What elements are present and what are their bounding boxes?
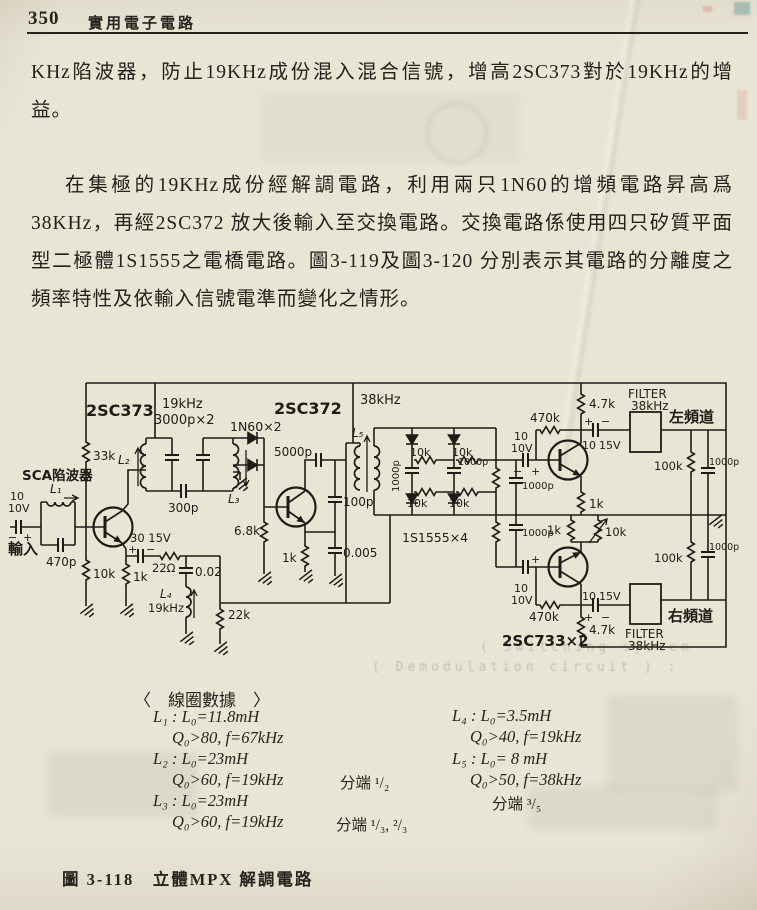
- book-title: 實用電子電路: [88, 12, 196, 33]
- label-1k-top-emitter: 1k: [589, 497, 604, 511]
- label-1000p-bridge-2: 1000p: [458, 457, 488, 468]
- label-1s1555: 1S1555×4: [402, 530, 468, 545]
- label-1000p-matrix-1: 1000p: [522, 481, 554, 492]
- label-top-cap-15v: 15V: [599, 439, 621, 452]
- label-t4-cap-plus: +: [531, 553, 540, 566]
- label-100k-bottom: 100k: [654, 551, 683, 565]
- resistor-22k: [217, 607, 224, 631]
- label-t3-cap-10v: 10V: [511, 442, 533, 455]
- label-filter-bottom-freq: 38kHz: [628, 639, 666, 653]
- ground: [80, 604, 98, 620]
- resistor-matrix-2: [493, 520, 500, 544]
- coil-L5-q: Q₀>50, f=38kHz: [470, 770, 581, 790]
- coil-L2-tap: 分端 ¹/₂: [340, 771, 389, 793]
- capacitor-10uf-top-base: [523, 453, 528, 467]
- label-38khz: 38kHz: [360, 393, 401, 408]
- label-100p: 100p: [343, 495, 374, 509]
- coil-L4: [186, 587, 191, 617]
- capacitor-3000p-1: [165, 455, 179, 460]
- label-1k-t2: 1k: [282, 551, 297, 565]
- label-1n60: 1N60×2: [230, 419, 282, 434]
- label-1k-bottom-emitter: 1k: [547, 523, 561, 537]
- label-19khz-L4: 19kHz: [148, 601, 184, 615]
- label-top-cap-minus: −: [601, 415, 610, 428]
- label-470k-bottom: 470k: [529, 610, 559, 624]
- resistor-matrix-1: [493, 466, 500, 490]
- label-1k-t1: 1k: [133, 570, 148, 584]
- label-top-cap-plus: +: [584, 415, 593, 428]
- label-2sc373: 2SC373: [86, 401, 154, 420]
- arrow-L4: [191, 590, 197, 618]
- label-2sc372: 2SC372: [274, 399, 342, 418]
- arrow-L5: [364, 436, 370, 492]
- label-4k7-bottom: 4.7k: [589, 623, 615, 637]
- header-rule: [27, 32, 748, 34]
- capacitor-300p: [181, 484, 186, 498]
- coils: [47, 444, 380, 617]
- resistor-470k-top: [538, 427, 562, 434]
- ground: [299, 570, 317, 586]
- capacitor-470p: [58, 538, 63, 552]
- coil-L5-primary: [355, 446, 361, 490]
- capacitor-1000p-matrix-1: [509, 478, 523, 483]
- coil-L3-tap: 分端 ¹/₃, ²/₃: [336, 813, 407, 835]
- label-5000p: 5000p: [274, 445, 312, 459]
- label-filter-top-freq: 38kHz: [631, 399, 669, 413]
- label-100k-top: 100k: [654, 459, 683, 473]
- label-0005: 0.005: [343, 546, 377, 560]
- label-470k-top: 470k: [530, 411, 560, 425]
- page-number: 350: [28, 8, 60, 30]
- label-002: 0.02: [195, 565, 222, 579]
- figure-caption: 圖 3-118 立體MPX 解調電路: [62, 866, 313, 890]
- label-L4: L₄: [160, 587, 172, 601]
- label-1000p-bridge-1: 1000p: [391, 460, 402, 492]
- label-top-cap-10: 10: [582, 439, 596, 452]
- resistor-1k-top-emitter: [578, 490, 585, 514]
- circuit-diagram: 2SC373 19kHz 3000p×2 1N60×2 2SC372 38kHz…: [8, 372, 753, 674]
- label-right-channel: 右頻道: [668, 607, 713, 625]
- bleedthrough-blob: [606, 694, 738, 792]
- resistor-6k8: [261, 520, 268, 544]
- arrow-L1: [64, 495, 78, 501]
- capacitor-30uf-15v: [138, 549, 143, 563]
- bleedthrough-blob: [528, 786, 718, 830]
- label-t3-cap-plus: +: [531, 465, 540, 478]
- capacitor-3000p-2: [196, 455, 210, 460]
- coil-L3: [233, 444, 239, 488]
- filter-box-top: [630, 412, 661, 452]
- coil-L5-tap: 分端 ³/₅: [492, 792, 541, 814]
- label-10k-bridge-1: 10k: [410, 446, 431, 459]
- diode-1s1555-1: [406, 435, 418, 444]
- label-30uf-plus: +: [128, 543, 137, 556]
- label-1000p-out-bottom: 1000p: [709, 542, 739, 553]
- paragraph-1: KHz陷波器，防止19KHz成份混入混合信號，增高2SC373對於19KHz的增…: [31, 54, 733, 130]
- label-10k-bridge-4: 10k: [449, 497, 470, 510]
- label-10k-variable: 10k: [605, 525, 627, 539]
- ground: [258, 572, 276, 588]
- label-bot-cap-15v: 15V: [599, 590, 621, 603]
- resistor-100k-bottom: [688, 540, 695, 564]
- capacitor-1000p-out-top: [701, 468, 715, 473]
- diode-1s1555-2: [448, 435, 460, 444]
- coil-L1-q: Q₀>80, f=67kHz: [172, 728, 283, 748]
- label-bot-cap-plus: +: [584, 611, 593, 624]
- coil-L2: [141, 444, 147, 488]
- capacitor-1000p-matrix-2: [509, 525, 523, 530]
- resistor-22ohm: [158, 553, 182, 560]
- label-L3: L₃: [228, 492, 240, 506]
- coil-L3-q: Q₀>60, f=19kHz: [172, 812, 283, 832]
- label-22ohm: 22Ω: [152, 561, 176, 575]
- coil-L4-inductance: L₄ : L₀=3.5mH: [452, 706, 551, 726]
- circuit-wires: [10, 383, 726, 647]
- filter-box-bottom: [630, 584, 661, 624]
- capacitor-002: [179, 568, 193, 573]
- resistor-10k-bias: [83, 558, 90, 582]
- label-1000p-out-top: 1000p: [709, 457, 739, 468]
- label-L2: L₂: [118, 453, 130, 467]
- label-left-channel: 左頻道: [668, 408, 714, 426]
- label-19khz-tank: 19kHz: [162, 397, 203, 412]
- coil-L1: [47, 502, 71, 506]
- capacitor-1000p-bridge-2: [447, 468, 461, 473]
- capacitor-1000p-bridge-1: [405, 468, 419, 473]
- label-input: 輸入: [8, 540, 38, 558]
- ground: [120, 604, 138, 620]
- ground: [180, 632, 198, 648]
- label-10k-bias: 10k: [93, 567, 115, 581]
- label-470p: 470p: [46, 555, 77, 569]
- label-33k: 33k: [93, 449, 115, 463]
- label-300p: 300p: [168, 501, 199, 515]
- coil-L4-q: Q₀>40, f=19kHz: [470, 727, 581, 747]
- resistor-100k-top: [688, 450, 695, 474]
- ground: [214, 642, 232, 658]
- coil-L3-inductance: L₃ : L₀=23mH: [153, 791, 248, 811]
- capacitor-10uf-bottom-base: [523, 560, 528, 574]
- label-t4-cap-10v: 10V: [511, 594, 533, 607]
- ground: [329, 574, 347, 590]
- label-L5: L₅: [352, 426, 364, 440]
- coil-L2-q: Q₀>60, f=19kHz: [172, 770, 283, 790]
- capacitor-0005: [328, 548, 342, 553]
- coil-L2-inductance: L₂ : L₀=23mH: [153, 749, 248, 769]
- coil-L5-inductance: L₅ : L₀= 8 mH: [452, 749, 547, 769]
- label-22k: 22k: [228, 608, 250, 622]
- capacitor-10uf-15v-top: [593, 423, 598, 437]
- bleedthrough-mark: [734, 2, 750, 15]
- capacitor-5000p: [316, 453, 321, 467]
- resistor-1k-t1: [123, 562, 130, 586]
- label-2sc733: 2SC733×2: [502, 632, 589, 650]
- label-L1: L₁: [50, 482, 62, 496]
- coil-L5-secondary: [374, 446, 380, 490]
- label-6k8: 6.8k: [234, 524, 260, 538]
- coil-L1-inductance: L₁ : L₀=11.8mH: [153, 707, 259, 727]
- label-3000p: 3000p×2: [154, 413, 215, 428]
- resistor-4k7-top: [578, 392, 585, 416]
- resistor-1k-bottom-emitter: [568, 518, 575, 542]
- resistor-1k-t2: [302, 544, 309, 568]
- label-input-cap-10v: 10V: [8, 502, 30, 515]
- ground: [709, 515, 727, 531]
- bleedthrough-mark: [703, 6, 712, 12]
- resistor-33k: [83, 440, 90, 464]
- label-30uf-minus: −: [146, 543, 155, 556]
- resistor-470k-bottom: [538, 602, 562, 609]
- label-4k7-top: 4.7k: [589, 397, 615, 411]
- label-bot-cap-10: 10: [582, 590, 596, 603]
- label-10k-bridge-3: 10k: [407, 497, 428, 510]
- capacitor-100p: [328, 497, 342, 502]
- label-t3-cap-minus: −: [513, 465, 522, 478]
- book-page: ( Switching system ( Demodulation circui…: [0, 0, 757, 910]
- diode-1n60-2: [248, 459, 257, 471]
- label-bot-cap-minus: −: [601, 611, 610, 624]
- paragraph-2: 在集極的19KHz成份經解調電路，利用兩只1N60的增頻電路昇高爲38KHz，再…: [31, 167, 733, 319]
- bleedthrough-mark: [737, 90, 747, 120]
